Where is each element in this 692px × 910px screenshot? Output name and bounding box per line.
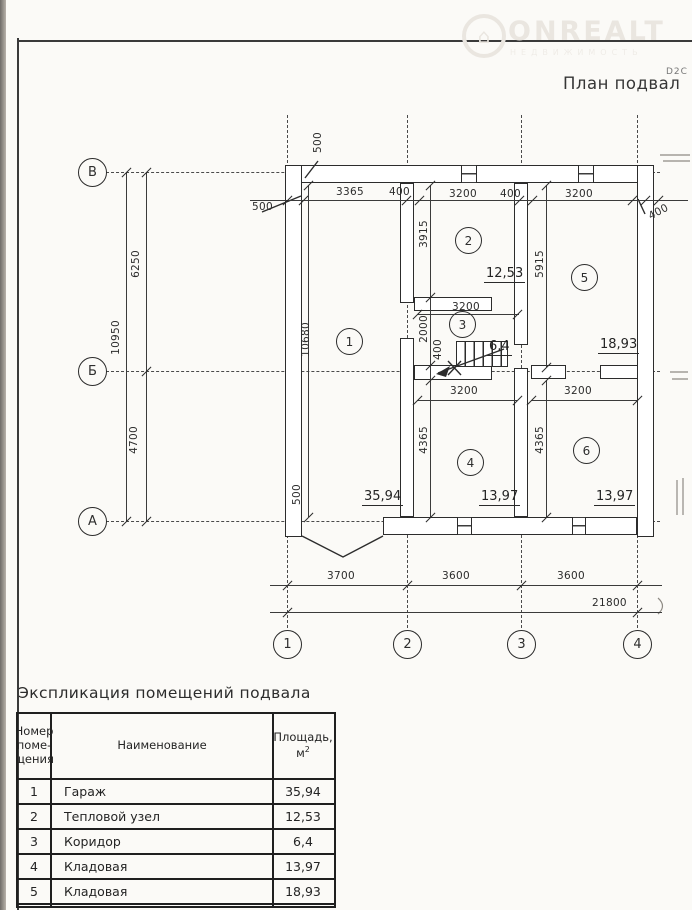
header-area-line1: Площадь, xyxy=(273,731,332,745)
dim-label: 5915 xyxy=(534,250,546,278)
cell-room-name: Тепловой узел xyxy=(52,805,274,828)
room-area-storage6: 13,97 xyxy=(594,489,635,506)
cell-room-number: 4 xyxy=(18,855,52,878)
dim-label: 3200 xyxy=(564,385,592,397)
dim-line-bottom-2 xyxy=(270,612,662,613)
dim-label: 3700 xyxy=(327,570,355,582)
dim-label: 400 xyxy=(432,339,444,360)
dim-line-room5-v xyxy=(546,185,547,367)
room-number-5: 5 xyxy=(571,264,598,291)
header-area-sup: 2 xyxy=(305,745,310,754)
dim-label: 3200 xyxy=(565,188,593,200)
header-area: Площадь, м2 xyxy=(274,714,332,778)
cell-room-area: 6,4 xyxy=(274,830,332,853)
axis-circle-B: Б xyxy=(78,357,107,386)
dim-label: 10950 xyxy=(110,320,122,355)
dim-line-top xyxy=(250,200,688,201)
axis-circle-4: 4 xyxy=(623,630,652,659)
room-number-1: 1 xyxy=(336,328,363,355)
cell-room-number: 5 xyxy=(18,880,52,903)
cell-room-area: 12,53 xyxy=(274,805,332,828)
dim-label: 10680 xyxy=(300,322,312,357)
axis-circle-A: А xyxy=(78,507,107,536)
dim-label: 6250 xyxy=(130,250,142,278)
cell-room-name: Кладовая xyxy=(52,880,274,903)
cell-room-name: Коридор xyxy=(52,830,274,853)
table-header-row: Номер поме- щения Наименование Площадь, … xyxy=(18,714,334,780)
cell-room-area: 35,94 xyxy=(274,780,332,803)
explication-table: Номер поме- щения Наименование Площадь, … xyxy=(16,712,336,908)
dim-line-room4-v xyxy=(430,380,431,517)
dim-label: 3600 xyxy=(557,570,585,582)
dim-label: 3600 xyxy=(442,570,470,582)
header-room-number-line3: щения xyxy=(16,753,54,767)
table-row: 2 Тепловой узел 12,53 xyxy=(18,805,334,830)
room-area-storage4: 13,97 xyxy=(479,489,520,506)
dim-label: 500 xyxy=(252,201,273,213)
room-area-heat: 12,53 xyxy=(484,266,525,283)
header-room-number: Номер поме- щения xyxy=(18,714,52,778)
dim-line-room2-v xyxy=(430,185,431,380)
cell-room-name: Гараж xyxy=(52,780,274,803)
cell-room-number xyxy=(18,905,52,908)
dim-line-B-left xyxy=(417,400,517,401)
dim-label: 3915 xyxy=(418,220,430,248)
room-number-4: 4 xyxy=(457,449,484,476)
dim-label: 500 xyxy=(291,484,303,505)
dim-label: 2000 xyxy=(418,315,430,343)
dim-label: 4700 xyxy=(128,426,140,454)
dim-label: 21800 xyxy=(592,597,627,609)
cell-room-name xyxy=(52,905,274,908)
dim-line-room6-v xyxy=(546,380,547,517)
room-number-2: 2 xyxy=(455,227,482,254)
room-area-storage5: 18,93 xyxy=(598,337,639,354)
room-area-corridor: 6,4 xyxy=(487,339,512,356)
table-title: Экспликация помещений подвала xyxy=(18,684,311,702)
dim-line-left-seg xyxy=(146,172,147,521)
dim-label: 3365 xyxy=(336,186,364,198)
axis-circle-V: В xyxy=(78,158,107,187)
table-row: 4 Кладовая 13,97 xyxy=(18,855,334,880)
dim-label: 3200 xyxy=(450,385,478,397)
dim-label: 3200 xyxy=(449,188,477,200)
axis-circle-2: 2 xyxy=(393,630,422,659)
dim-label: 4365 xyxy=(534,426,546,454)
header-room-number-line2: поме- xyxy=(16,739,54,753)
scanned-floor-plan-page: ⌂ ONREALT НЕДВИЖИМОСТЬ План подвал D2C xyxy=(0,0,692,910)
header-area-unit: м xyxy=(296,746,305,760)
table-row: 1 Гараж 35,94 xyxy=(18,780,334,805)
room-area-garage: 35,94 xyxy=(362,489,403,506)
dim-line-left-total xyxy=(126,172,127,521)
cell-room-number: 3 xyxy=(18,830,52,853)
header-name: Наименование xyxy=(52,714,274,778)
room-number-3: 3 xyxy=(449,311,476,338)
dim-label: 400 xyxy=(389,186,410,198)
cell-room-area: 13,97 xyxy=(274,855,332,878)
cell-room-area: 18,93 xyxy=(274,880,332,903)
header-room-number-line1: Номер xyxy=(16,725,54,739)
dim-label: 400 xyxy=(500,188,521,200)
axis-circle-1: 1 xyxy=(273,630,302,659)
room-number-6: 6 xyxy=(573,437,600,464)
table-row: 5 Кладовая 18,93 xyxy=(18,880,334,905)
cell-room-number: 1 xyxy=(18,780,52,803)
axis-circle-3: 3 xyxy=(507,630,536,659)
dim-label: 4365 xyxy=(418,426,430,454)
cell-room-number: 2 xyxy=(18,805,52,828)
dim-label: 500 xyxy=(312,132,324,153)
cell-room-name: Кладовая xyxy=(52,855,274,878)
cell-room-area xyxy=(274,905,332,908)
table-row: 3 Коридор 6,4 xyxy=(18,830,334,855)
dim-line-bottom-1 xyxy=(270,585,662,586)
table-row-partial xyxy=(18,905,334,908)
